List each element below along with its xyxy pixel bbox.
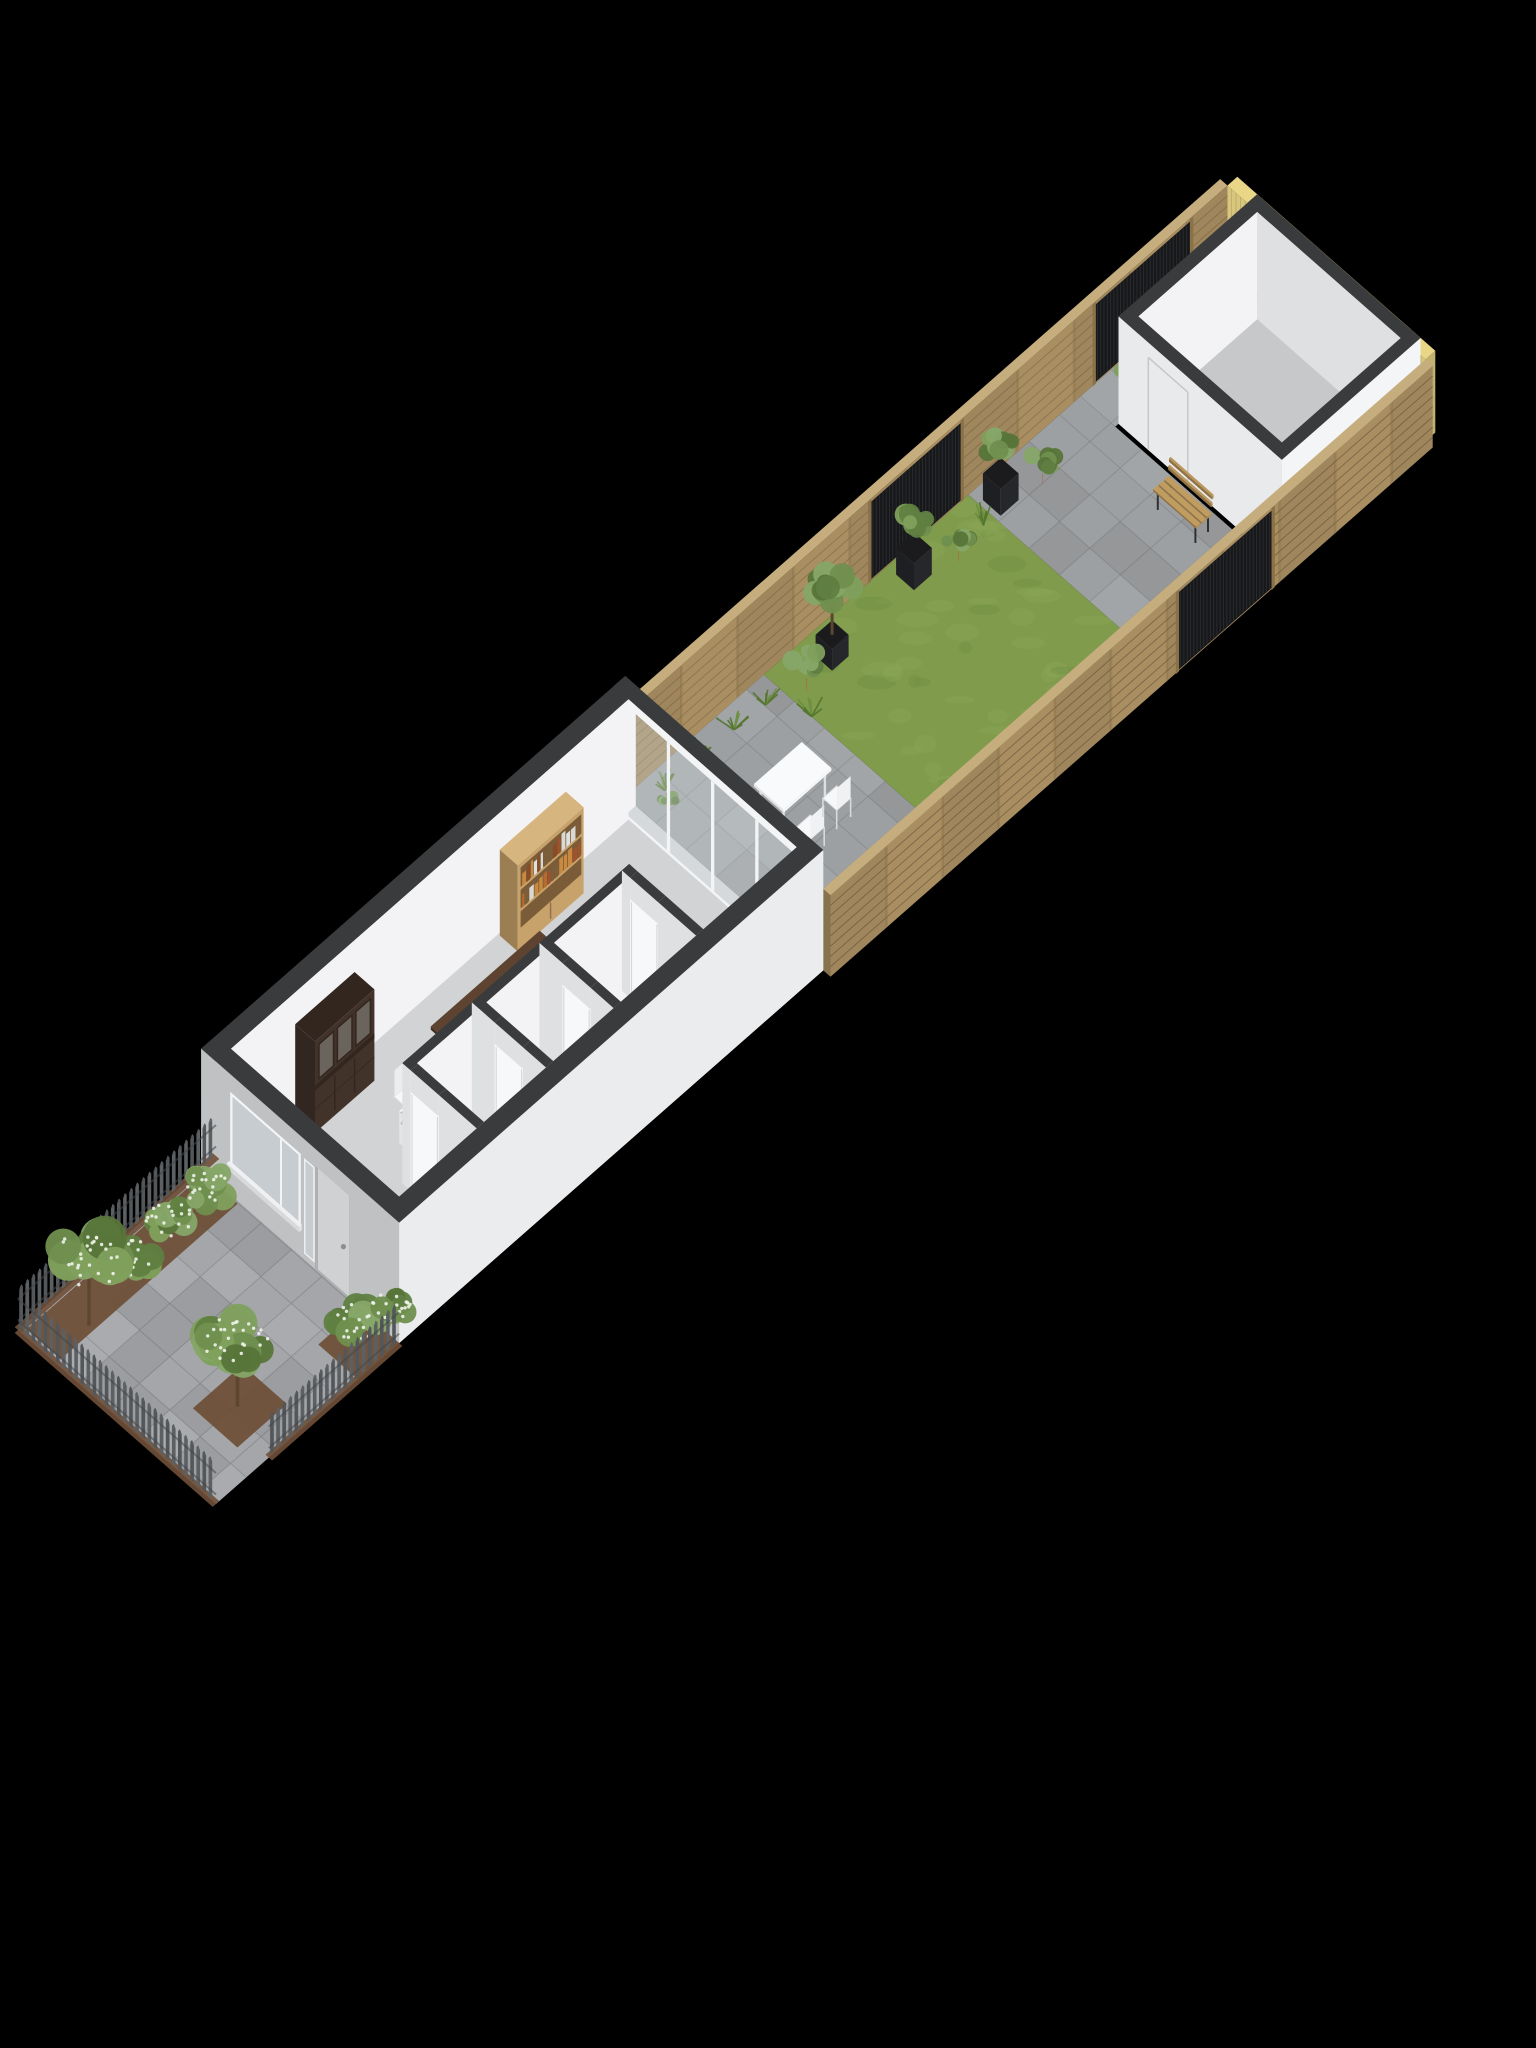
scene-svg xyxy=(0,0,1536,2048)
floorplan-3d-render xyxy=(0,0,1536,2048)
